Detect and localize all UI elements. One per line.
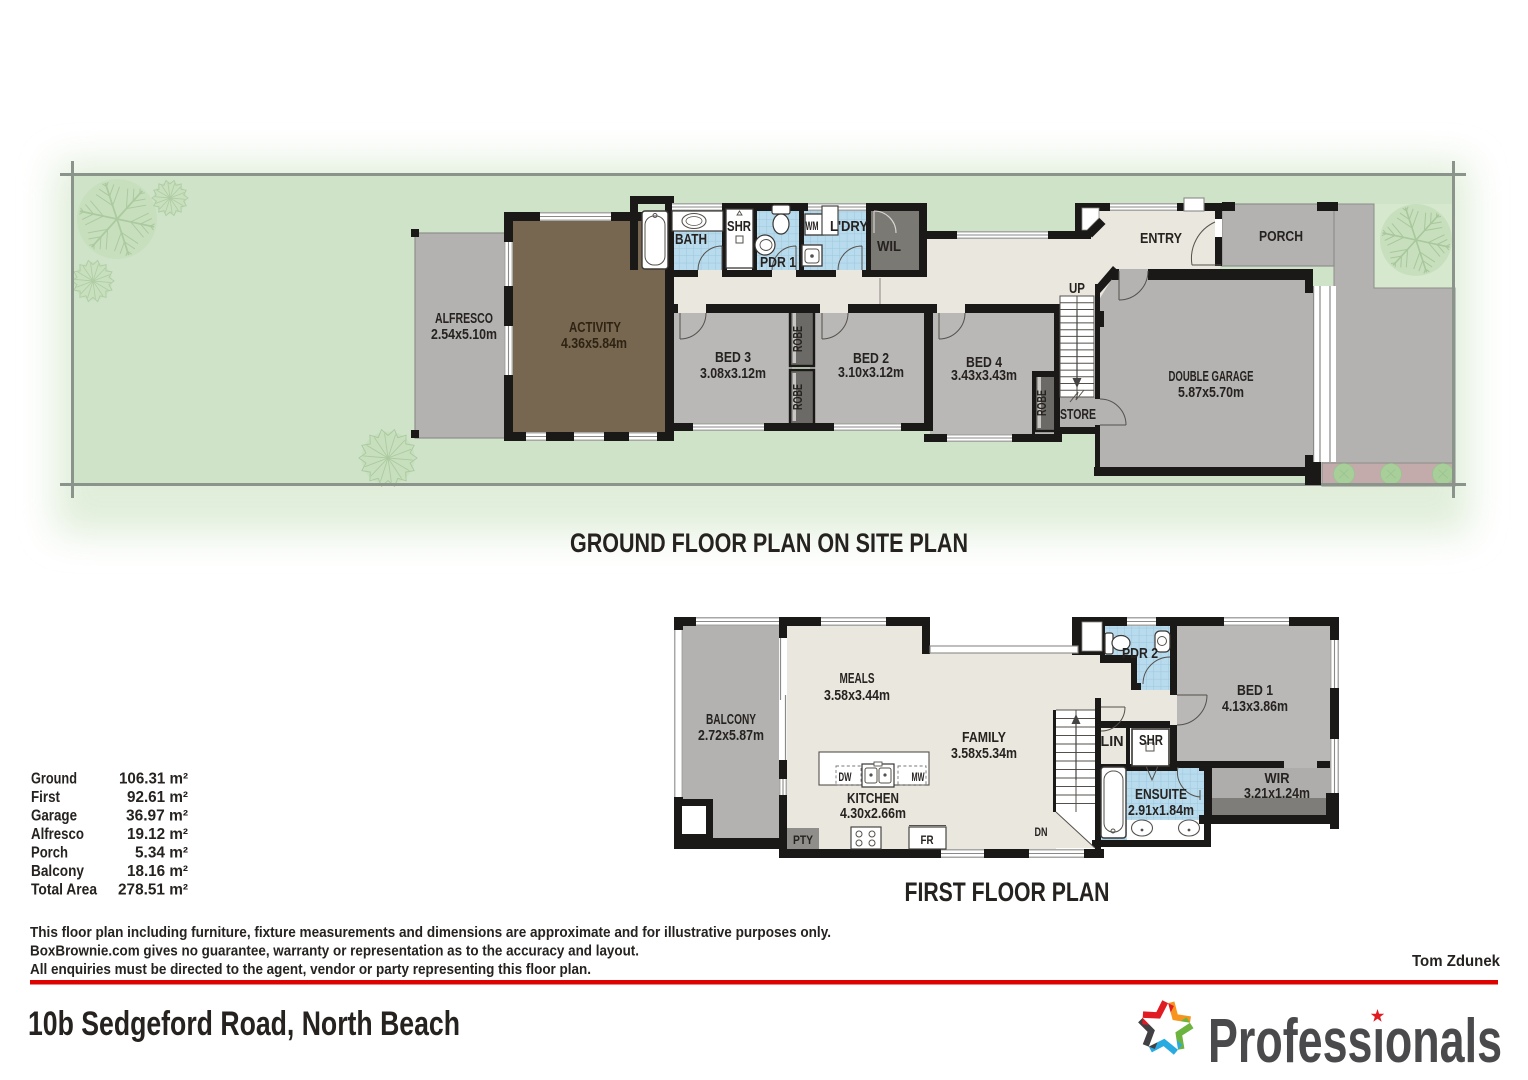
- svg-text:36.97 m²: 36.97 m²: [126, 808, 188, 825]
- svg-text:L'DRY: L'DRY: [830, 219, 868, 235]
- svg-text:WM: WM: [806, 219, 819, 233]
- svg-text:Porch: Porch: [31, 845, 68, 862]
- svg-text:Alfresco: Alfresco: [31, 826, 84, 843]
- svg-text:PTY: PTY: [793, 833, 813, 847]
- svg-text:Ground: Ground: [31, 771, 77, 788]
- svg-text:18.16 m²: 18.16 m²: [127, 863, 188, 880]
- svg-text:LIN: LIN: [1101, 734, 1124, 750]
- svg-text:SHR: SHR: [1139, 733, 1163, 749]
- svg-text:MW: MW: [912, 770, 925, 784]
- svg-text:BED 3: BED 3: [715, 350, 751, 366]
- svg-text:DN: DN: [1035, 825, 1048, 839]
- svg-text:STORE: STORE: [1060, 407, 1096, 423]
- svg-text:3.08x3.12m: 3.08x3.12m: [700, 366, 766, 382]
- svg-text:All enquiries must be directed: All enquiries must be directed to the ag…: [30, 962, 591, 978]
- svg-text:2.91x1.84m: 2.91x1.84m: [1128, 803, 1194, 819]
- svg-text:4.13x3.86m: 4.13x3.86m: [1222, 699, 1288, 715]
- svg-text:FR: FR: [921, 833, 934, 847]
- svg-text:Total Area: Total Area: [31, 882, 97, 899]
- svg-text:WIL: WIL: [877, 239, 901, 255]
- svg-text:5.87x5.70m: 5.87x5.70m: [1178, 385, 1244, 401]
- svg-text:FIRST FLOOR PLAN: FIRST FLOOR PLAN: [905, 877, 1110, 907]
- svg-text:ALFRESCO: ALFRESCO: [435, 311, 493, 327]
- svg-text:Tom Zdunek: Tom Zdunek: [1412, 953, 1500, 970]
- svg-text:Professıonals: Professıonals: [1208, 1007, 1502, 1076]
- svg-text:PORCH: PORCH: [1259, 229, 1303, 245]
- svg-text:ENSUITE: ENSUITE: [1135, 787, 1187, 803]
- svg-text:2.72x5.87m: 2.72x5.87m: [698, 728, 764, 744]
- svg-text:ROBE: ROBE: [790, 326, 805, 352]
- svg-text:4.36x5.84m: 4.36x5.84m: [561, 336, 627, 352]
- svg-text:3.43x3.43m: 3.43x3.43m: [951, 368, 1017, 384]
- svg-text:3.10x3.12m: 3.10x3.12m: [838, 365, 904, 381]
- svg-text:3.21x1.24m: 3.21x1.24m: [1244, 786, 1310, 802]
- svg-text:First: First: [31, 789, 60, 806]
- svg-text:92.61 m²: 92.61 m²: [127, 789, 188, 806]
- svg-text:BATH: BATH: [675, 232, 707, 248]
- svg-text:DOUBLE GARAGE: DOUBLE GARAGE: [1169, 369, 1254, 385]
- svg-text:19.12 m²: 19.12 m²: [127, 826, 188, 843]
- svg-text:WIR: WIR: [1265, 771, 1290, 787]
- svg-text:10b Sedgeford Road, North Beac: 10b Sedgeford Road, North Beach: [28, 1005, 460, 1043]
- svg-text:2.54x5.10m: 2.54x5.10m: [431, 327, 497, 343]
- svg-text:UP: UP: [1069, 281, 1085, 297]
- svg-text:DW: DW: [839, 770, 852, 784]
- svg-text:MEALS: MEALS: [840, 671, 875, 687]
- svg-text:106.31 m²: 106.31 m²: [119, 771, 188, 788]
- svg-text:ACTIVITY: ACTIVITY: [569, 320, 621, 336]
- svg-text:278.51 m²: 278.51 m²: [118, 882, 188, 899]
- svg-text:ROBE: ROBE: [1034, 390, 1049, 416]
- svg-text:3.58x5.34m: 3.58x5.34m: [951, 746, 1017, 762]
- svg-text:This floor plan including furn: This floor plan including furniture, fix…: [30, 925, 831, 941]
- svg-text:BoxBrownie.com gives no guaran: BoxBrownie.com gives no guarantee, warra…: [30, 944, 639, 960]
- svg-text:BALCONY: BALCONY: [706, 712, 756, 728]
- svg-text:KITCHEN: KITCHEN: [847, 791, 899, 807]
- svg-text:Balcony: Balcony: [31, 863, 84, 880]
- svg-text:ROBE: ROBE: [790, 384, 805, 410]
- svg-text:BED 1: BED 1: [1237, 683, 1273, 699]
- svg-text:Garage: Garage: [31, 808, 77, 825]
- svg-text:GROUND FLOOR PLAN ON SITE PLAN: GROUND FLOOR PLAN ON SITE PLAN: [570, 528, 968, 558]
- svg-text:ENTRY: ENTRY: [1140, 231, 1182, 247]
- svg-text:PDR 1: PDR 1: [760, 255, 796, 271]
- svg-text:5.34 m²: 5.34 m²: [135, 845, 188, 862]
- svg-text:3.58x3.44m: 3.58x3.44m: [824, 688, 890, 704]
- svg-text:PDR 2: PDR 2: [1122, 646, 1158, 662]
- svg-text:SHR: SHR: [727, 219, 751, 235]
- svg-text:FAMILY: FAMILY: [962, 730, 1006, 746]
- svg-text:4.30x2.66m: 4.30x2.66m: [840, 806, 906, 822]
